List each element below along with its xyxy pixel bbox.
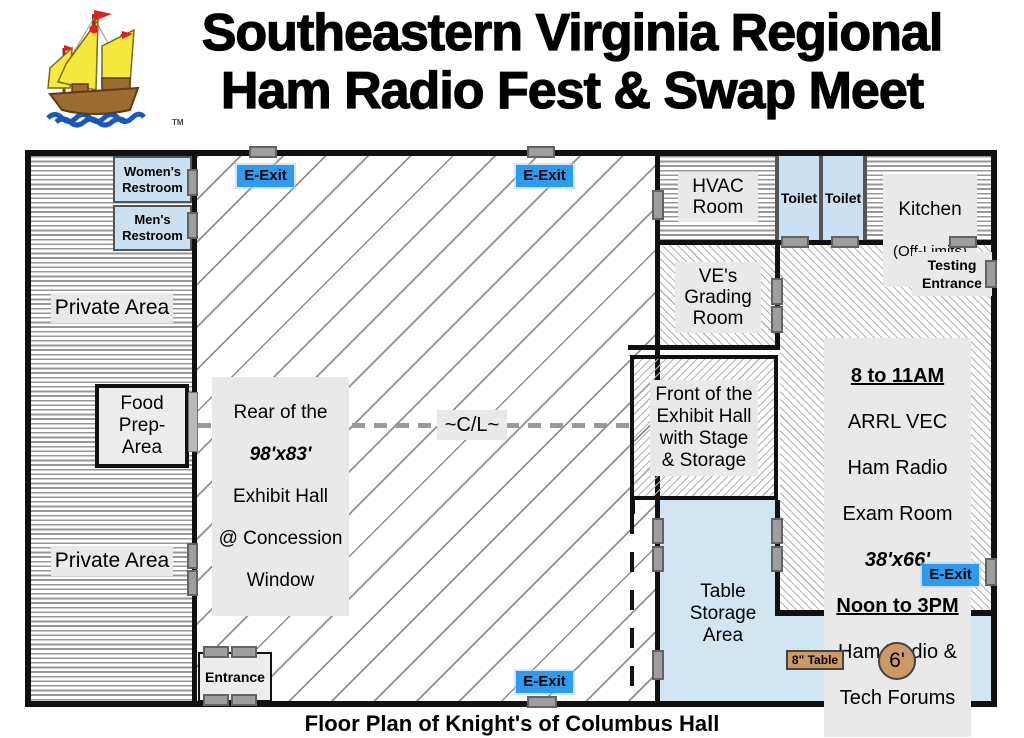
partition-dashed-line (630, 514, 634, 701)
door-marker (231, 646, 257, 658)
door-marker (781, 236, 809, 248)
kitchen-l1: Kitchen (888, 199, 972, 220)
door-marker (771, 306, 783, 333)
toilet-2: Toilet (823, 156, 863, 240)
exam-l1: 8 to 11AM (829, 365, 966, 388)
door-marker (187, 543, 198, 569)
ship-logo-icon: TM (42, 4, 146, 132)
rear-l3: Exhibit Hall (217, 486, 344, 507)
rear-l5: Window (217, 570, 344, 591)
private-area-upper-label: Private Area (51, 293, 173, 323)
caption: Floor Plan of Knight's of Columbus Hall (0, 711, 1024, 737)
floor-plan: Women's Restroom Men's Restroom Toilet T… (25, 150, 997, 707)
page-title-line2: Ham Radio Fest & Swap Meet (132, 62, 1012, 120)
rear-l4: @ Concession (217, 528, 344, 549)
door-marker (203, 694, 229, 706)
door-marker (949, 236, 977, 248)
rear-l2: 98'x83' (217, 444, 344, 465)
page-title: Southeastern Virginia Regional Ham Radio… (132, 4, 1012, 120)
e-exit-top-left: E-Exit (237, 165, 294, 187)
door-marker (652, 650, 664, 680)
front-exhibit-label: Front of the Exhibit Hall with Stage & S… (650, 380, 757, 476)
door-marker (231, 694, 257, 706)
exam-l3: Ham Radio (829, 457, 966, 480)
eight-foot-table-label: 8" Table (792, 653, 838, 667)
front-exhibit-room: Front of the Exhibit Hall with Stage & S… (630, 355, 778, 500)
eight-foot-table-marker: 8" Table (786, 650, 844, 670)
wall-front-room-stub (630, 500, 635, 514)
door-marker (652, 190, 664, 220)
exam-l6: Noon to 3PM (829, 595, 966, 618)
testing-entrance-label: Testing Entrance (912, 252, 992, 296)
exam-l4: Exam Room (829, 503, 966, 526)
door-marker (187, 169, 198, 196)
door-marker (771, 278, 783, 305)
door-marker (527, 146, 555, 158)
door-marker (771, 546, 783, 572)
exam-l2: ARRL VEC (829, 411, 966, 434)
rear-exhibit-label: Rear of the 98'x83' Exhibit Hall @ Conce… (212, 377, 349, 616)
food-prep-label: Food Prep-Area (99, 393, 185, 459)
e-exit-exam-room: E-Exit (922, 564, 979, 586)
door-marker (771, 518, 783, 544)
exam-l8: Tech Forums (829, 687, 966, 710)
door-marker (985, 260, 997, 288)
door-marker (187, 212, 198, 239)
womens-restroom: Women's Restroom (113, 156, 192, 203)
door-marker (249, 146, 277, 158)
door-marker (527, 696, 557, 708)
table-storage-label: Table Storage Area (681, 581, 765, 647)
ve-grading-label: VE's Grading Room (675, 262, 761, 333)
six-foot-table-label: 6' (889, 649, 905, 673)
toilet-1: Toilet (779, 156, 819, 240)
e-exit-top-center: E-Exit (516, 165, 573, 187)
food-prep-area: Food Prep-Area (95, 384, 189, 468)
hvac-label: HVAC Room (678, 172, 758, 222)
rear-l1: Rear of the (217, 402, 344, 423)
concession-window (188, 392, 198, 452)
door-marker (652, 518, 664, 544)
mens-restroom-label: Men's Restroom (122, 212, 183, 244)
womens-restroom-label: Women's Restroom (122, 164, 183, 196)
door-marker (652, 546, 664, 572)
door-marker (985, 558, 997, 586)
private-area-lower-label: Private Area (51, 546, 173, 576)
entrance-label: Entrance (205, 669, 265, 685)
wall-ve-bottom (628, 345, 780, 350)
wall-toilet-right (863, 156, 867, 240)
toilet-1-label: Toilet (781, 190, 817, 206)
mens-restroom: Men's Restroom (113, 205, 192, 251)
six-foot-table-marker: 6' (878, 642, 916, 680)
door-marker (203, 646, 229, 658)
centerline-label: ~C/L~ (437, 410, 507, 440)
door-marker (187, 570, 198, 596)
e-exit-bottom: E-Exit (516, 671, 573, 693)
toilet-2-label: Toilet (825, 190, 861, 206)
page-title-line1: Southeastern Virginia Regional (132, 4, 1012, 62)
door-marker (831, 236, 859, 248)
